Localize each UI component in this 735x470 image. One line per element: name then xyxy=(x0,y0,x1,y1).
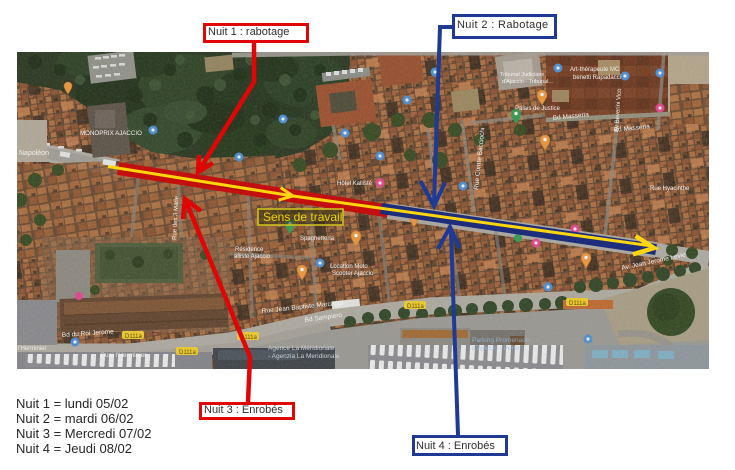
svg-text:Sens de travail: Sens de travail xyxy=(263,210,342,224)
